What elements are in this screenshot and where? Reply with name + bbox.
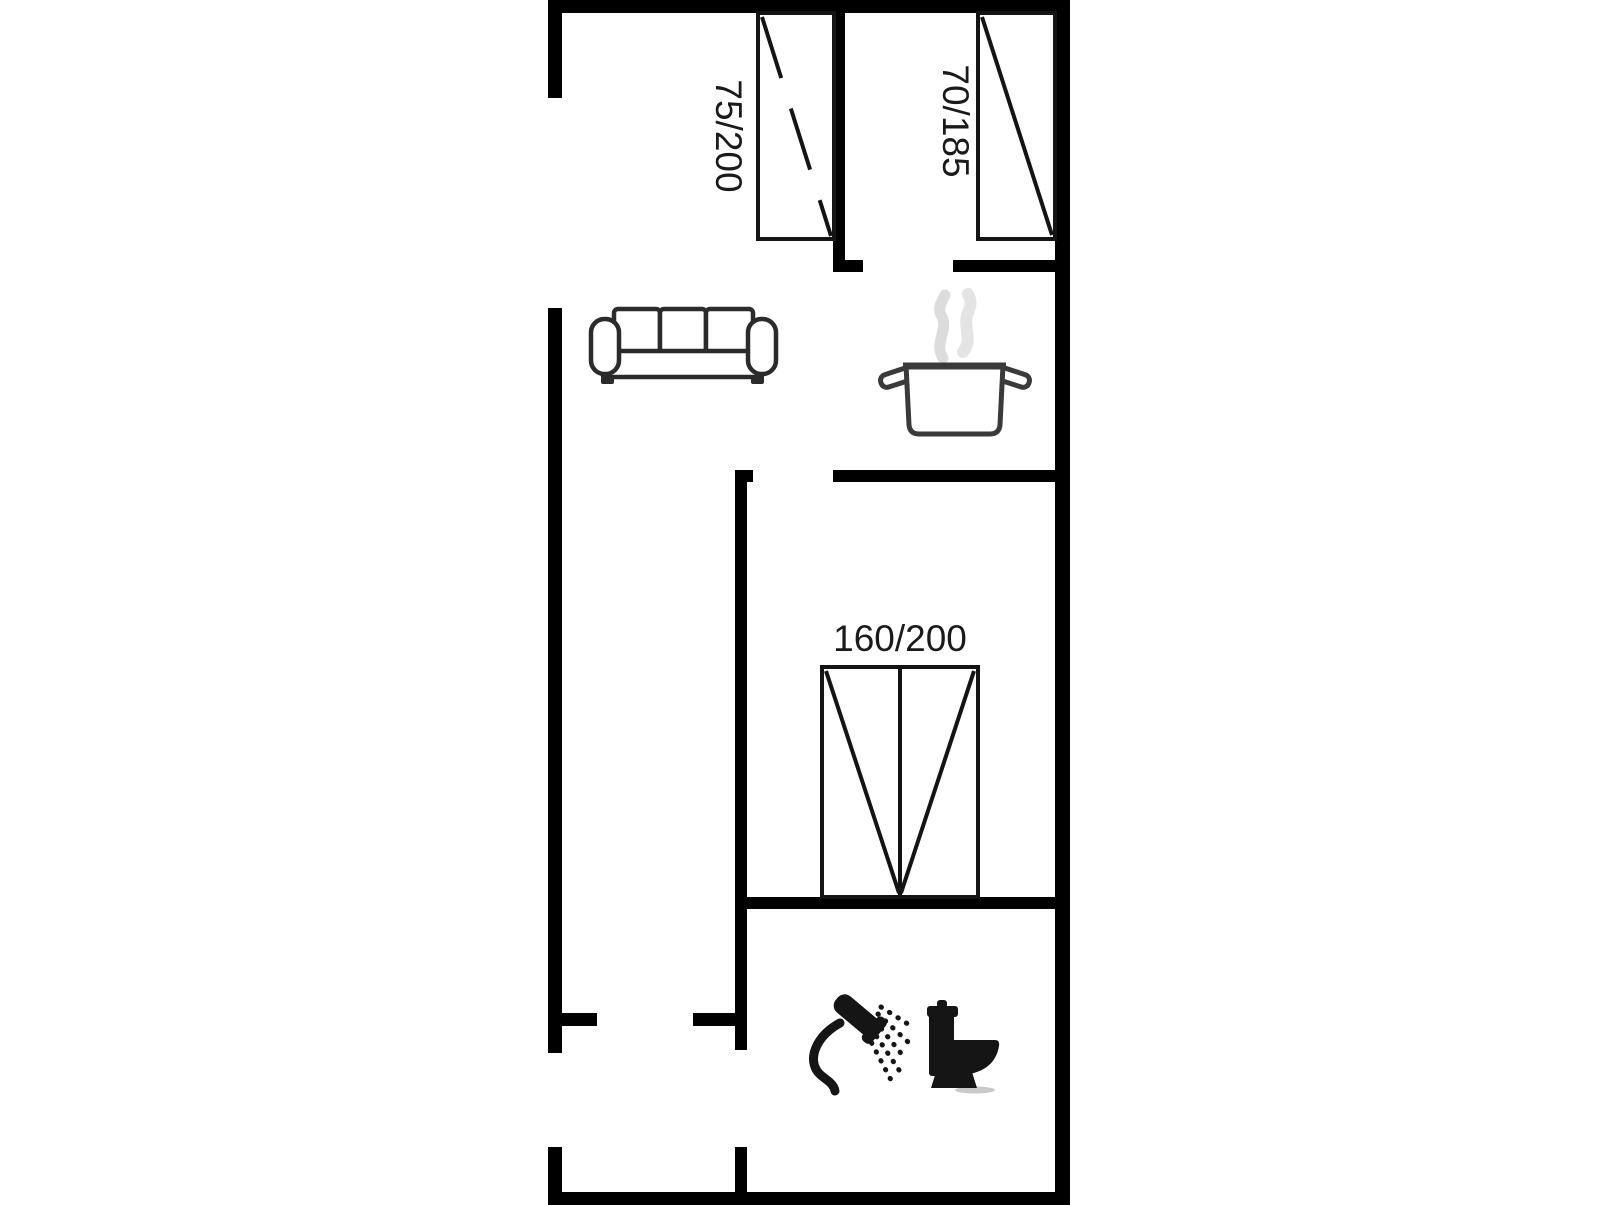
sofa-icon	[591, 309, 776, 384]
wall-bedroom-divider-jamb	[845, 260, 863, 272]
bed-double	[822, 667, 978, 897]
bed-label-70-185: 70/185	[935, 64, 976, 177]
shower-spray-4	[871, 1028, 899, 1070]
toilet-tank	[929, 1014, 954, 1076]
bed-label-160-200: 160/200	[833, 618, 967, 659]
sofa-arm-right	[748, 319, 776, 374]
pot-body	[906, 365, 1003, 434]
shower-spray-5	[867, 1034, 891, 1080]
sofa-cushion-2	[660, 309, 706, 355]
shower-hose	[814, 1023, 840, 1091]
wall-right	[1055, 0, 1070, 1205]
wall-hall-upper	[735, 470, 747, 1050]
wall-hall-lower	[735, 1147, 747, 1192]
bed-single-left	[758, 13, 834, 239]
wall-left-lower	[548, 1147, 562, 1205]
floor-plan-drawing: 75/200 70/185 160/200	[0, 0, 1606, 1205]
wall-kitchen-south	[833, 470, 1055, 482]
wall-entry-jamb-right	[693, 1013, 735, 1026]
sofa-base	[604, 351, 763, 377]
wall-left-middle	[548, 308, 562, 1053]
bed-single-right	[978, 13, 1055, 239]
steam-plume-left	[940, 295, 945, 358]
steam-plume-right	[963, 294, 971, 352]
toilet-base	[931, 1072, 977, 1088]
wall-entry-jamb-left	[558, 1013, 597, 1026]
sofa-arm-left	[591, 319, 619, 374]
wall-bottom	[548, 1192, 1070, 1205]
cooking-pot-icon	[879, 294, 1031, 434]
shower-icon	[814, 987, 911, 1091]
toilet-bowl	[954, 1040, 999, 1075]
bed-label-75-200: 75/200	[708, 79, 749, 192]
wall-bedroom-right	[953, 260, 1055, 272]
floor-plan: 75/200 70/185 160/200	[0, 0, 1606, 1205]
toilet-icon	[927, 1000, 999, 1094]
wall-left-upper	[548, 0, 562, 98]
